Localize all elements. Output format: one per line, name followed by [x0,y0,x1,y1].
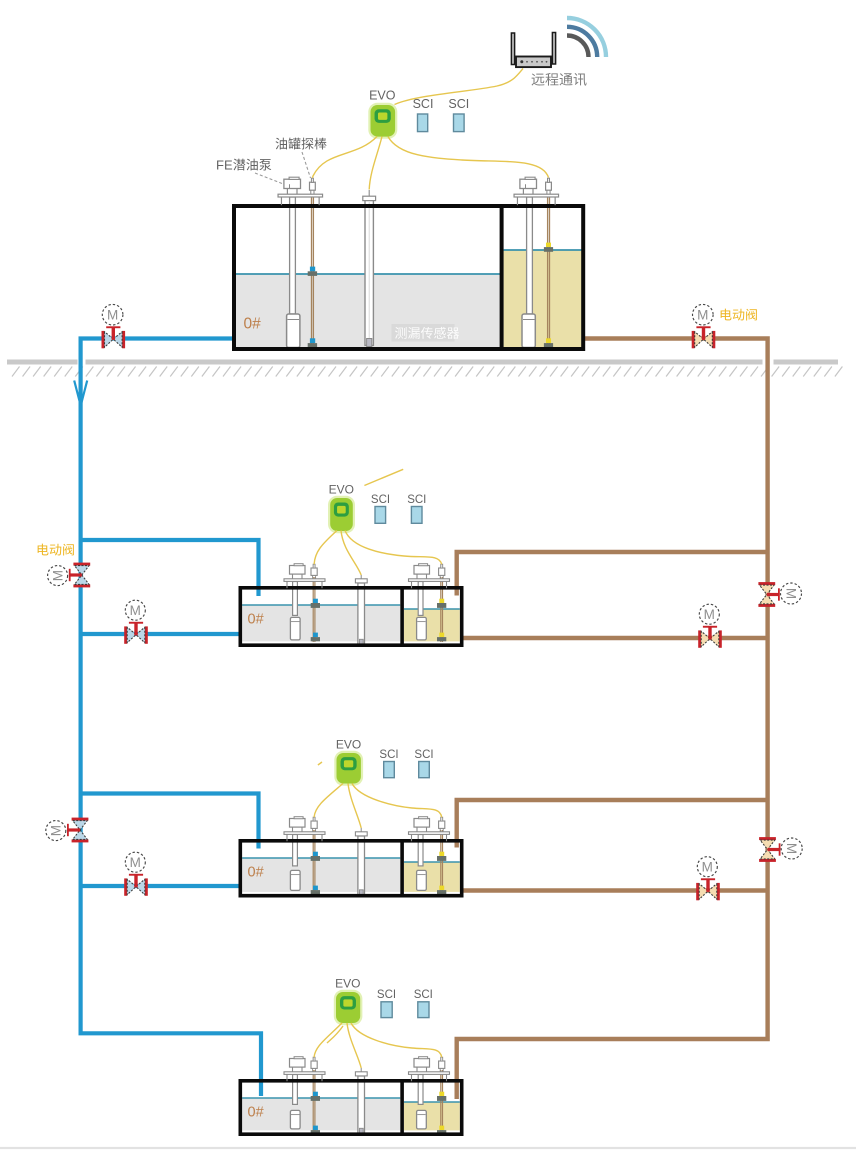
svg-text:SCI: SCI [413,97,434,111]
svg-text:M: M [130,603,141,618]
svg-text:SCI: SCI [377,989,396,1001]
svg-text:M: M [784,843,799,854]
svg-text:SCI: SCI [407,494,426,506]
svg-text:SCI: SCI [414,989,433,1001]
svg-text:0#: 0# [248,865,264,881]
svg-text:0#: 0# [244,316,262,333]
svg-text:M: M [130,855,141,870]
svg-text:SCI: SCI [448,97,469,111]
svg-text:0#: 0# [248,1105,264,1121]
svg-text:M: M [702,859,713,874]
svg-text:SCI: SCI [371,494,390,506]
svg-text:M: M [48,825,63,836]
svg-text:M: M [697,307,708,322]
svg-text:EVO: EVO [335,977,360,991]
svg-text:SCI: SCI [379,749,398,761]
svg-text:M: M [107,307,118,322]
svg-text:EVO: EVO [329,483,354,497]
svg-text:FE: FE [216,158,233,173]
svg-text:M: M [704,607,715,622]
svg-text:M: M [50,570,65,581]
svg-text:0#: 0# [248,612,264,628]
svg-text:SCI: SCI [414,749,433,761]
svg-text:EVO: EVO [369,89,396,103]
svg-text:EVO: EVO [336,738,361,752]
svg-text:M: M [783,588,798,599]
